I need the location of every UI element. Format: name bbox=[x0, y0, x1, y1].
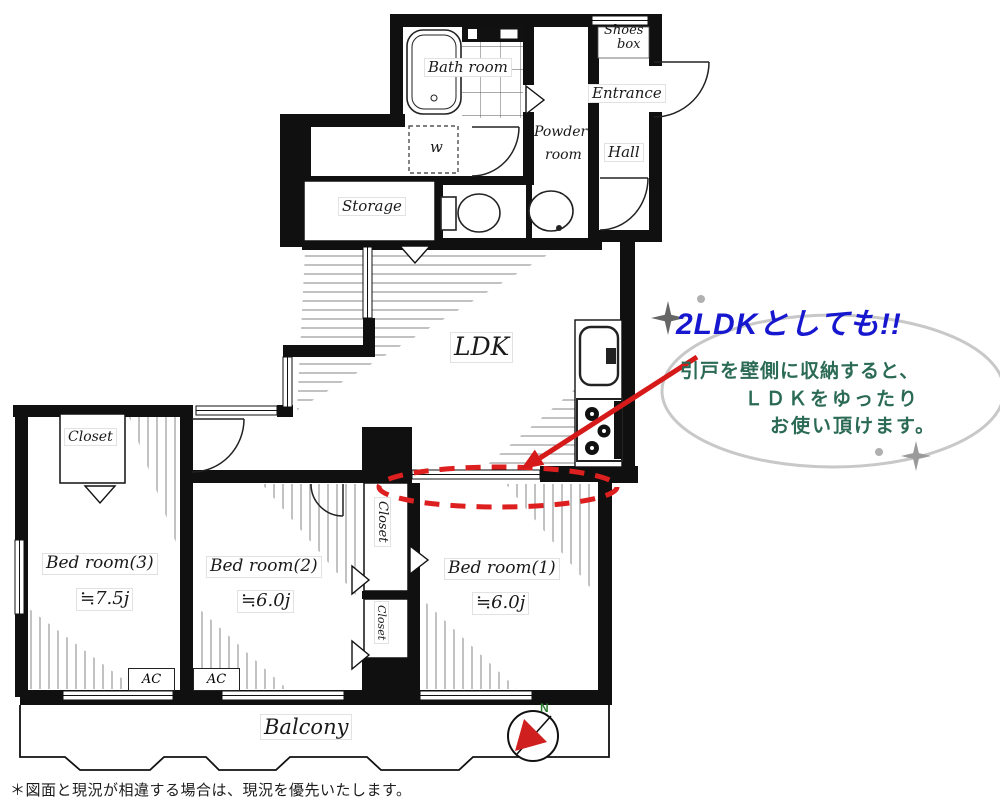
washer-label: w bbox=[427, 139, 446, 156]
bed3-closet-label: Closet bbox=[64, 428, 117, 446]
balcony-label: Balcony bbox=[260, 714, 352, 740]
closet-lower-label: Closet bbox=[374, 601, 389, 644]
faucet-icon bbox=[606, 348, 616, 364]
floor-plan: Bath room Shoes box Entrance Powder room… bbox=[0, 0, 1000, 809]
powder-room-label-line1: Powder bbox=[531, 124, 590, 140]
entrance-label: Entrance bbox=[588, 84, 666, 103]
powder-room-label-line2: room bbox=[542, 147, 585, 163]
bath-room-label: Bath room bbox=[424, 58, 512, 77]
annotation-line-2: ＬＤＫをゆったり bbox=[744, 384, 920, 411]
storage-label: Storage bbox=[338, 197, 406, 216]
ac-unit-bed3: AC bbox=[128, 668, 175, 691]
bed1-name-label: Bed room(1) bbox=[444, 558, 560, 580]
bed3-size-label: ≒7.5j bbox=[76, 588, 133, 611]
ac-unit-bed2: AC bbox=[193, 668, 240, 691]
bed3-closet-box bbox=[60, 414, 125, 483]
hall-door-arc bbox=[600, 178, 648, 230]
bed2-name-label: Bed room(2) bbox=[206, 556, 322, 578]
bed3-door-arc bbox=[192, 419, 244, 472]
ldk-label: LDK bbox=[450, 332, 513, 363]
ac-label: AC bbox=[207, 672, 226, 687]
bed2-size-label: ≒6.0j bbox=[237, 590, 294, 613]
compass-icon bbox=[508, 711, 558, 761]
annotation-line-1: 引戸を壁側に収納すると、 bbox=[680, 356, 919, 383]
north-label: N bbox=[540, 701, 549, 715]
powder-door-arc bbox=[472, 127, 519, 176]
hall-label: Hall bbox=[604, 143, 644, 162]
bed1-size-label: ≒6.0j bbox=[472, 592, 529, 615]
toilet-icon bbox=[441, 194, 500, 232]
closet-upper-label: Closet bbox=[374, 497, 391, 547]
annotation-title: 2LDKとしても!! bbox=[676, 299, 902, 343]
annotation-line-3: お使い頂けます。 bbox=[770, 411, 936, 438]
washbasin-icon bbox=[529, 191, 573, 231]
kitchen-counter bbox=[575, 320, 622, 467]
disclaimer-text: ＊図面と現況が相違する場合は、現況を優先いたします。 bbox=[10, 779, 412, 800]
ac-label: AC bbox=[142, 672, 161, 687]
shoes-box-label-line2: box bbox=[614, 38, 643, 53]
sliding-door-rail bbox=[412, 470, 540, 479]
bed3-name-label: Bed room(3) bbox=[42, 553, 158, 575]
